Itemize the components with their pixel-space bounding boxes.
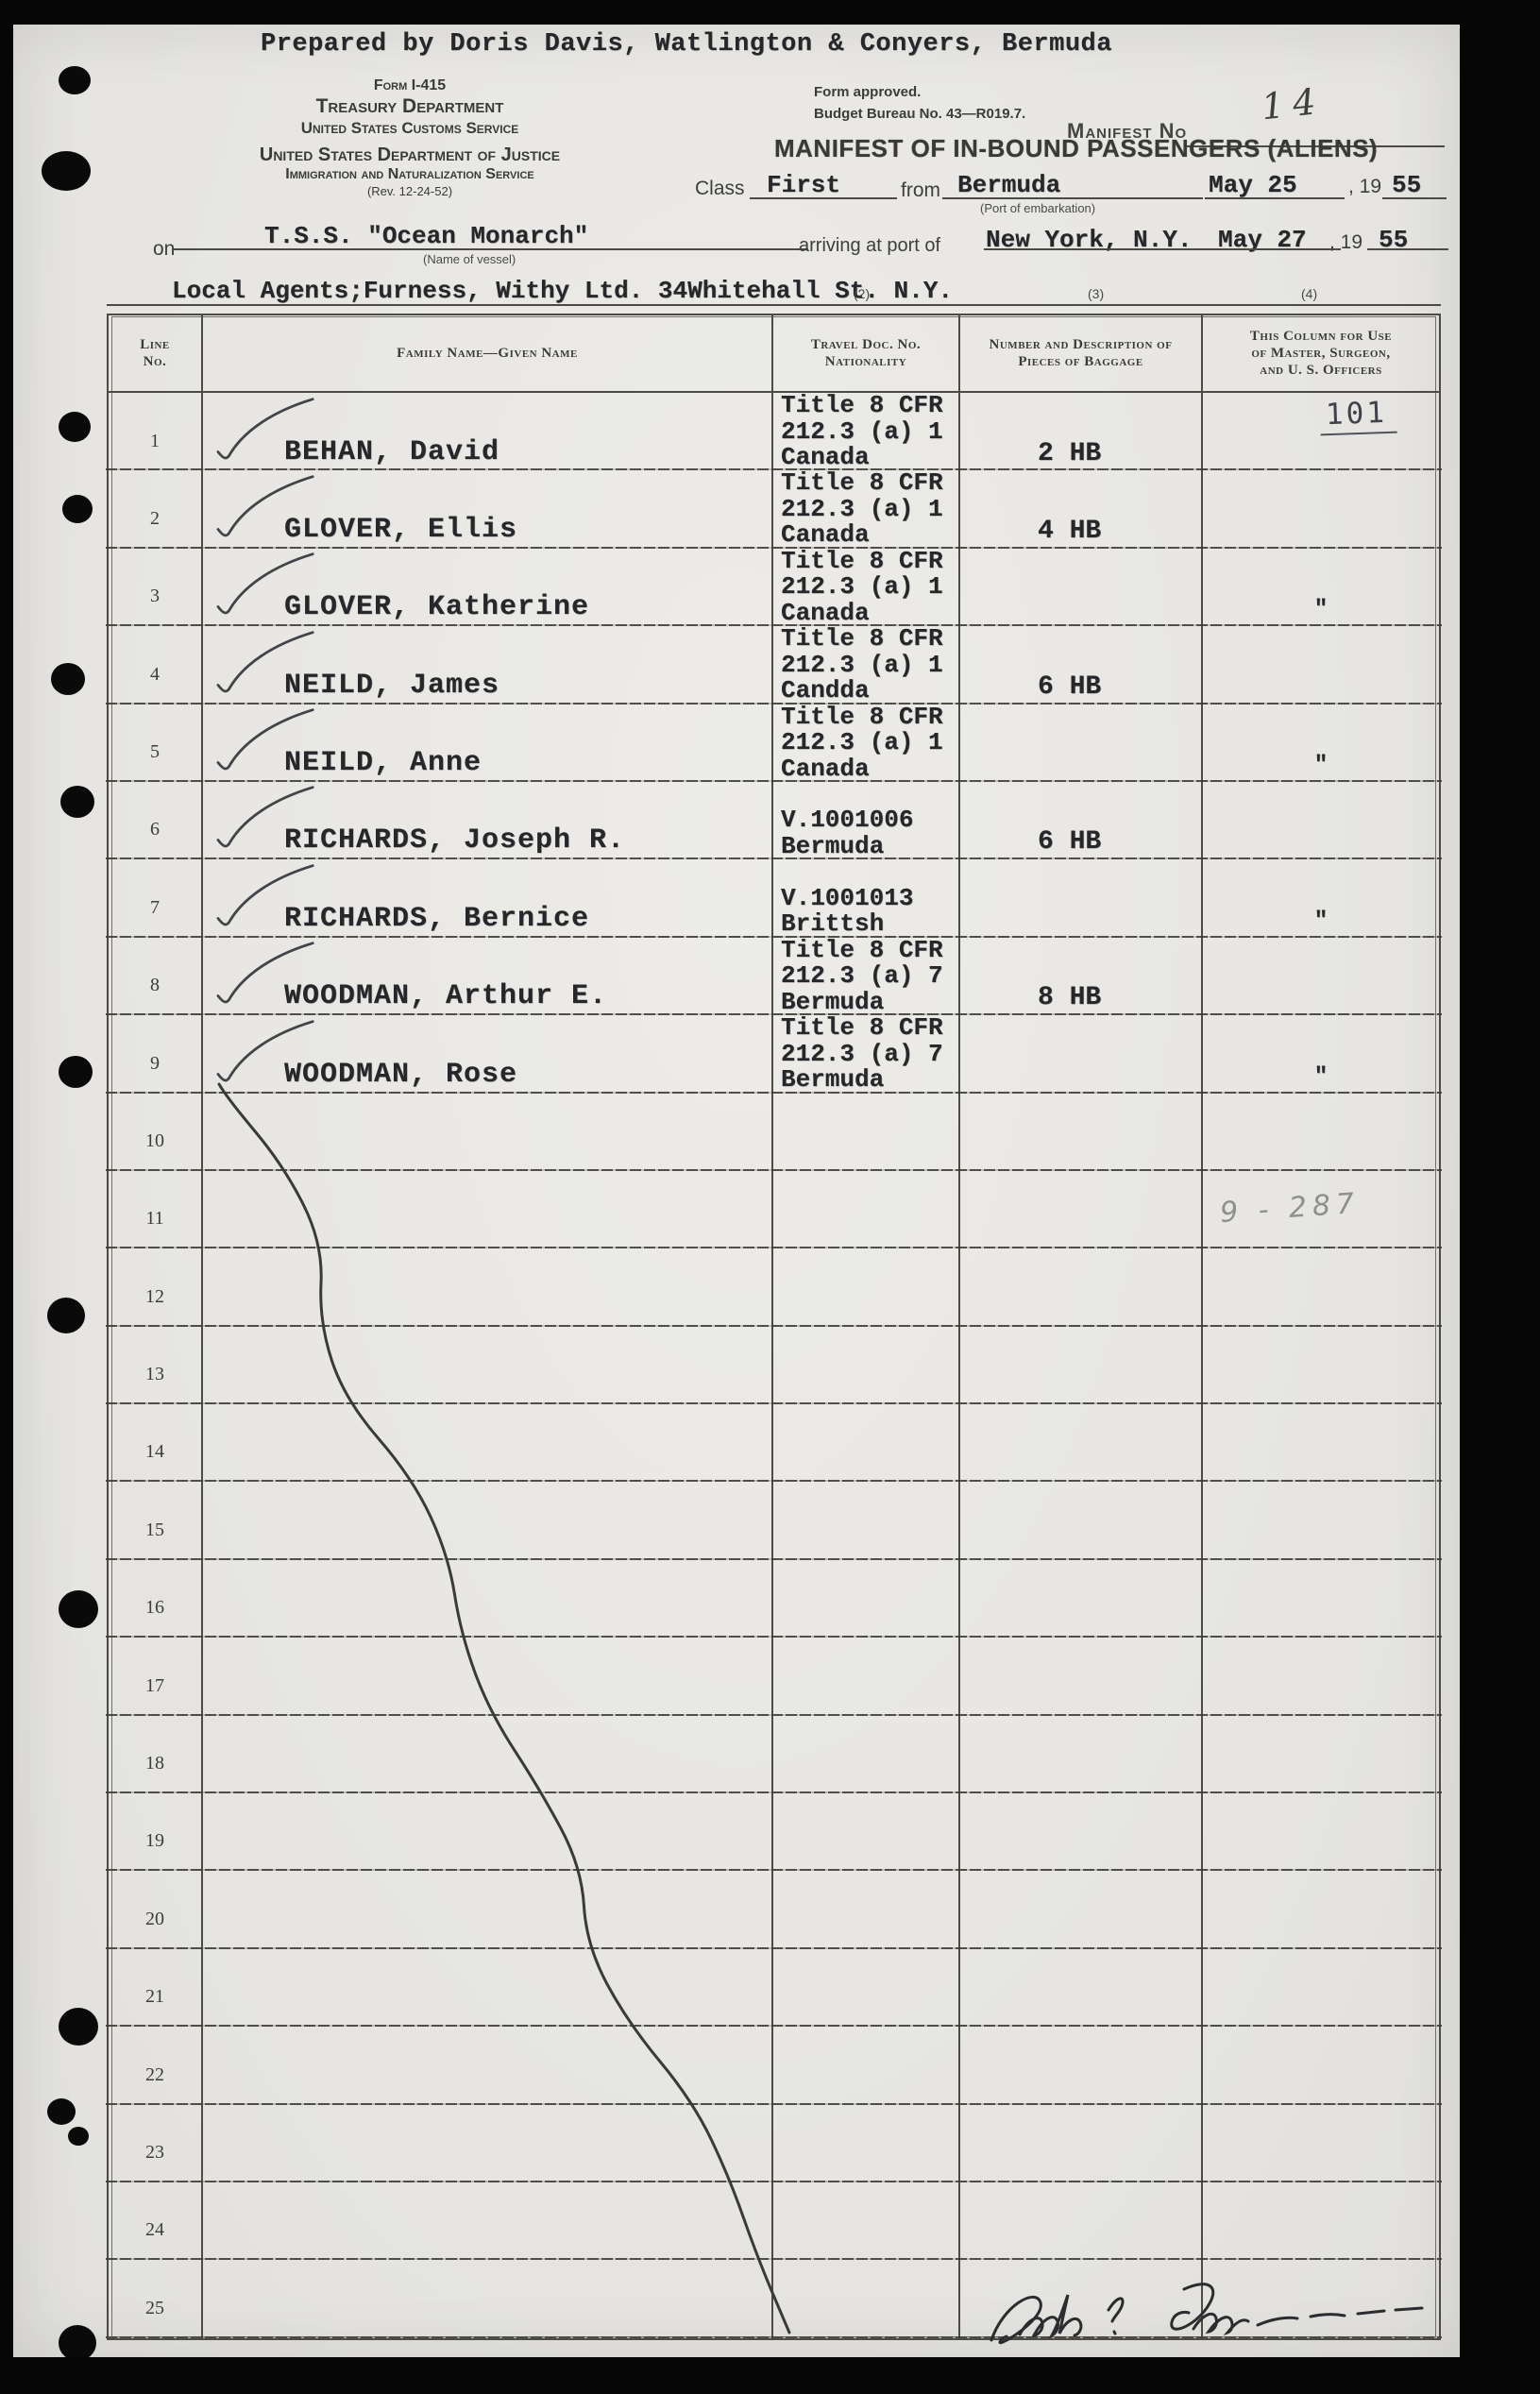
from-underline (942, 197, 1203, 199)
punch-hole (59, 412, 91, 442)
table-row: 3 GLOVER, Katherine Title 8 CFR 212.3 (a… (109, 549, 1439, 626)
passenger-name: GLOVER, Katherine (284, 591, 589, 623)
baggage-count: 6 HB (1038, 827, 1101, 857)
table-row: 25 (109, 2260, 1439, 2337)
arrival-date-underline (1207, 248, 1341, 250)
on-label: on (153, 238, 175, 261)
footnote-ref-3: (3) (1088, 286, 1104, 301)
punch-hole (59, 66, 91, 94)
table-row: 24 (109, 2182, 1439, 2260)
travel-doc-nationality: Title 8 CFR 212.3 (a) 1 Candda (781, 626, 943, 705)
checkmark-icon (209, 551, 324, 624)
table-row: 16 (109, 1560, 1439, 1638)
passenger-name: RICHARDS, Bernice (284, 903, 589, 935)
table-row: 2 GLOVER, Ellis Title 8 CFR 212.3 (a) 1 … (109, 470, 1439, 548)
arrival-port-underline (984, 248, 1207, 250)
customs-service-line: United States Customs Service (145, 119, 674, 138)
table-header-row: Line No. Family Name—Given Name Travel D… (109, 315, 1439, 393)
line-number: 18 (109, 1716, 203, 1793)
table-row: 8 WOODMAN, Arthur E. Title 8 CFR 212.3 (… (109, 938, 1439, 1015)
checkmark-icon (209, 784, 324, 857)
col-header-baggage: Number and Description of Pieces of Bagg… (960, 315, 1203, 391)
punch-hole (59, 1056, 93, 1088)
vessel-name-value: T.S.S. "Ocean Monarch" (264, 222, 588, 250)
line-number: 25 (109, 2260, 203, 2337)
line-number: 17 (109, 1638, 203, 1715)
revision-date: (Rev. 12-24-52) (145, 184, 674, 198)
agents-underline (107, 304, 1441, 306)
line-number: 13 (109, 1327, 203, 1404)
scanned-manifest-document: Prepared by Doris Davis, Watlington & Co… (0, 0, 1540, 2394)
embarkation-port-value: Bermuda (957, 171, 1060, 199)
checkmark-icon (209, 396, 324, 469)
table-row: 7 RICHARDS, Bernice V.1001013 Brittsh ″ (109, 859, 1439, 937)
form-number: Form I-415 (145, 77, 674, 95)
travel-doc-nationality: Title 8 CFR 212.3 (a) 1 Canada (781, 470, 943, 549)
line-number: 6 (109, 782, 203, 859)
travel-doc-nationality: Title 8 CFR 212.3 (a) 1 Canada (781, 705, 943, 783)
vessel-underline (174, 248, 808, 250)
punch-hole (47, 2098, 76, 2125)
vessel-caption: (Name of vessel) (423, 252, 516, 266)
table-row: 23 (109, 2105, 1439, 2182)
checkmark-icon (209, 940, 324, 1013)
line-number: 10 (109, 1094, 203, 1171)
line-number: 1 (109, 393, 203, 471)
form-approved-line: Form approved. (814, 81, 1025, 103)
passenger-name: WOODMAN, Arthur E. (284, 980, 607, 1012)
line-number: 7 (109, 859, 203, 937)
punch-hole (59, 2008, 98, 2046)
baggage-count: 4 HB (1038, 517, 1101, 546)
line-number: 16 (109, 1560, 203, 1638)
travel-doc-nationality: V.1001013 Brittsh (781, 886, 913, 938)
checkmark-icon (209, 706, 324, 780)
treasury-dept-line: Treasury Department (145, 95, 674, 119)
baggage-count: 8 HB (1038, 983, 1101, 1012)
class-underline (750, 197, 897, 199)
embarkation-year-value: 55 (1392, 171, 1421, 199)
line-number: 20 (109, 1871, 203, 1948)
document-title: MANIFEST OF IN-BOUND PASSENGERS (ALIENS) (774, 134, 1360, 163)
travel-doc-nationality: V.1001006 Bermuda (781, 807, 913, 859)
punch-hole (68, 2127, 89, 2146)
travel-doc-nationality: Title 8 CFR 212.3 (a) 1 Canada (781, 393, 943, 471)
line-number: 4 (109, 626, 203, 705)
line-number: 8 (109, 938, 203, 1016)
line-number: 14 (109, 1404, 203, 1482)
line-number: 5 (109, 705, 203, 783)
checkmark-icon (209, 629, 324, 703)
budget-bureau-line: Budget Bureau No. 43—R019.7. (814, 103, 1025, 125)
table-row: 6 RICHARDS, Joseph R. V.1001006 Bermuda … (109, 782, 1439, 859)
ins-line: Immigration and Naturalization Service (145, 166, 674, 184)
embarkation-date-value: May 25 (1209, 171, 1297, 199)
table-row: 19 (109, 1793, 1439, 1871)
table-row: 21 (109, 1949, 1439, 2027)
baggage-count: 6 HB (1038, 672, 1101, 702)
col-header-line-no: Line No. (109, 315, 203, 391)
handwritten-manifest-number: 14 (1260, 80, 1327, 128)
officer-column-value: ″ (1314, 597, 1328, 622)
baggage-count: 2 HB (1038, 439, 1101, 468)
table-row: 14 (109, 1404, 1439, 1482)
arrival-year-underline (1367, 248, 1448, 250)
line-number: 3 (109, 549, 203, 627)
table-row: 1 BEHAN, David Title 8 CFR 212.3 (a) 1 C… (109, 393, 1439, 470)
justice-dept-line: United States Department of Justice (145, 144, 674, 167)
officer-column-value: ″ (1314, 1064, 1328, 1090)
table-row: 9 WOODMAN, Rose Title 8 CFR 212.3 (a) 7 … (109, 1015, 1439, 1093)
col-header-officer: This Column for Use of Master, Surgeon, … (1203, 315, 1439, 391)
passenger-table: Line No. Family Name—Given Name Travel D… (107, 314, 1441, 2340)
line-number: 2 (109, 470, 203, 549)
footnote-ref-4: (4) (1301, 286, 1317, 301)
line-number: 22 (109, 2027, 203, 2104)
date-underline (1205, 197, 1345, 199)
col-header-travel-doc: Travel Doc. No. Nationality (773, 315, 960, 391)
class-label: Class (695, 178, 745, 200)
table-row: 10 (109, 1094, 1439, 1171)
year-prefix-printed: , 19 (1348, 176, 1381, 198)
footnote-ref-2: (2) (854, 286, 870, 301)
local-agents-value: Local Agents;Furness, Withy Ltd. 34White… (172, 277, 953, 305)
line-number: 11 (109, 1171, 203, 1248)
checkmark-icon (209, 1018, 324, 1092)
punch-hole (62, 495, 93, 523)
punch-hole (51, 663, 85, 695)
line-number: 24 (109, 2182, 203, 2260)
line-number: 12 (109, 1248, 203, 1326)
table-row: 18 (109, 1716, 1439, 1793)
prepared-by-note: Prepared by Doris Davis, Watlington & Co… (261, 30, 1112, 59)
port-embarkation-caption: (Port of embarkation) (980, 201, 1095, 215)
table-body: 1 BEHAN, David Title 8 CFR 212.3 (a) 1 C… (109, 393, 1439, 2338)
arriving-label: arriving at port of (799, 235, 940, 257)
table-row: 13 (109, 1327, 1439, 1404)
passenger-name: RICHARDS, Joseph R. (284, 824, 625, 857)
checkmark-icon (209, 862, 324, 936)
travel-doc-nationality: Title 8 CFR 212.3 (a) 1 Canada (781, 549, 943, 627)
table-row: 4 NEILD, James Title 8 CFR 212.3 (a) 1 C… (109, 626, 1439, 704)
table-row: 22 (109, 2027, 1439, 2104)
line-number: 21 (109, 1949, 203, 2027)
punch-hole (60, 786, 94, 818)
officer-column-value: ″ (1314, 753, 1328, 778)
manifest-page: Prepared by Doris Davis, Watlington & Co… (13, 25, 1460, 2357)
year-underline (1382, 197, 1447, 199)
line-number: 15 (109, 1482, 203, 1559)
table-row: 5 NEILD, Anne Title 8 CFR 212.3 (a) 1 Ca… (109, 705, 1439, 782)
form-approval-block: Form approved. Budget Bureau No. 43—R019… (814, 81, 1025, 126)
handwritten-page-number: 101 (1319, 396, 1396, 436)
travel-doc-nationality: Title 8 CFR 212.3 (a) 7 Bermuda (781, 938, 943, 1016)
checkmark-icon (209, 473, 324, 547)
punch-hole (59, 2325, 96, 2357)
officer-column-value: ″ (1314, 908, 1328, 934)
line-number: 9 (109, 1015, 203, 1094)
arrival-year-prefix: , 19 (1329, 231, 1362, 254)
table-row: 15 (109, 1482, 1439, 1559)
line-number: 19 (109, 1793, 203, 1871)
line-number: 23 (109, 2105, 203, 2182)
col-header-name: Family Name—Given Name (203, 315, 773, 391)
punch-hole (47, 1298, 85, 1333)
table-row: 17 (109, 1638, 1439, 1715)
form-id-block: Form I-415 Treasury Department United St… (145, 77, 674, 198)
from-label: from (901, 179, 940, 202)
punch-hole (59, 1590, 98, 1628)
table-row: 20 (109, 1871, 1439, 1948)
table-row: 12 (109, 1248, 1439, 1326)
punch-hole (42, 151, 91, 191)
class-value: First (767, 171, 840, 199)
travel-doc-nationality: Title 8 CFR 212.3 (a) 7 Bermuda (781, 1015, 943, 1094)
